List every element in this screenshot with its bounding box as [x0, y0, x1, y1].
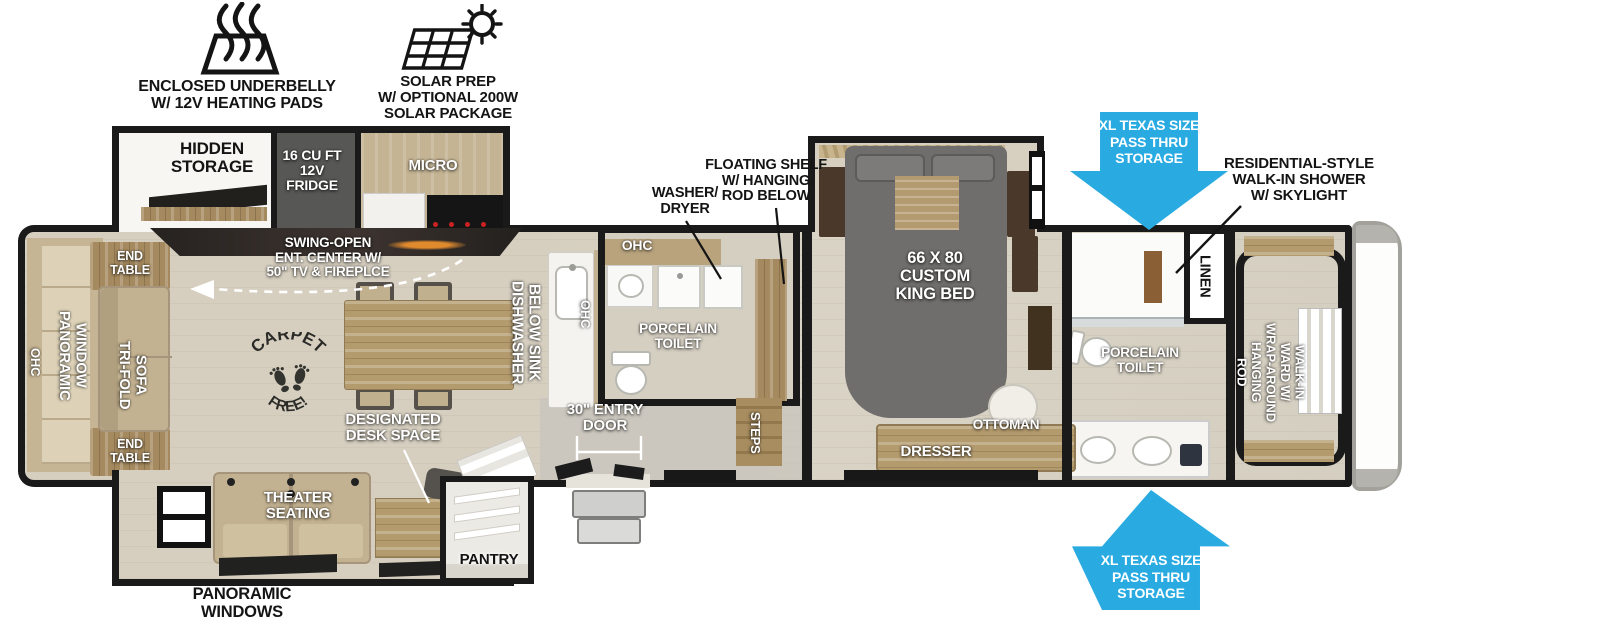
fridge-label: 16 CU FT 12V FRIDGE: [268, 148, 356, 193]
kitchen-ohc-label: OHC: [578, 288, 592, 340]
svg-text:FREE!: FREE!: [265, 393, 311, 416]
window: [157, 486, 211, 548]
shower-glass: [1072, 317, 1184, 327]
entry-door-label: 30" ENTRY DOOR: [548, 402, 662, 434]
pass-thru-arrow-top: XL TEXAS SIZE PASS THRU STORAGE: [1070, 112, 1228, 230]
dinette-chair: [356, 388, 394, 410]
panoramic-windows-label: PANORAMIC WINDOWS: [168, 586, 316, 622]
dishwasher-label: DISHWASHER BELOW SINK: [508, 255, 541, 410]
bedroom-left-wall: [802, 226, 812, 480]
solar-label: SOLAR PREP W/ OPTIONAL 200W SOLAR PACKAG…: [358, 74, 538, 123]
ent-center-label: SWING-OPEN ENT. CENTER W/ 50" TV & FIREP…: [233, 236, 423, 280]
window: [844, 470, 1038, 482]
king-bed-label: 66 X 80 CUSTOM KING BED: [872, 250, 998, 303]
micro-label: MICRO: [386, 158, 480, 174]
entry-steps-outside: [577, 518, 641, 544]
hidden-storage-label: HIDDEN STORAGE: [152, 140, 272, 177]
bath-vanity: [607, 265, 653, 307]
end-table-top-label: END TABLE: [88, 250, 172, 277]
shower: [1072, 233, 1184, 327]
slide-window: [379, 561, 445, 577]
desk-space-label: DESIGNATED DESK SPACE: [326, 412, 460, 444]
end-table-bottom-label: END TABLE: [88, 438, 172, 465]
floating-shelf-label: FLOATING SHELF W/ HANGING ROD BELOW: [698, 158, 834, 205]
front-toilet-label: PORCELAIN TOILET: [1078, 346, 1202, 375]
svg-text:CARPET: CARPET: [247, 332, 330, 357]
free-text: FREE!: [265, 393, 311, 416]
pantry-label: PANTRY: [444, 552, 534, 568]
folded-blanket: [895, 176, 959, 230]
micro-cabinet: [361, 133, 503, 232]
bath-ohc-label: OHC: [610, 238, 664, 253]
mid-toilet-label: PORCELAIN TOILET: [618, 322, 738, 351]
slide-window: [219, 554, 337, 576]
linen-label: LINEN: [1196, 240, 1212, 312]
dresser-label: DRESSER: [874, 444, 998, 460]
rv-floorplan-canvas: ENCLOSED UNDERBELLY W/ 12V HEATING PADS …: [0, 0, 1600, 625]
footprint-icon: [268, 363, 310, 395]
solar-panel-sun-icon: [400, 4, 504, 74]
ward-shelf-bottom: [1244, 440, 1334, 462]
ward-shelf-top: [1244, 236, 1334, 256]
front-cap: [1352, 221, 1402, 491]
shower-panel: [1144, 251, 1162, 303]
shower-label: RESIDENTIAL-STYLE WALK-IN SHOWER W/ SKYL…: [1206, 156, 1392, 205]
bedroom-tv: [1028, 306, 1052, 370]
toilet-mid: [611, 351, 655, 397]
dryer: [703, 265, 743, 309]
pass-thru-top-label: XL TEXAS SIZE PASS THRU STORAGE: [1099, 112, 1200, 230]
carpet-free-stamp: CARPET FREE!: [238, 332, 338, 428]
steps-label: STEPS: [748, 404, 762, 462]
nightstand: [1012, 236, 1038, 292]
micro-counter: [363, 193, 425, 231]
theater-seating-label: THEATER SEATING: [236, 490, 360, 522]
dinette-chair: [414, 388, 452, 410]
bath-bedroom-wall: [1062, 226, 1072, 480]
pass-thru-bottom-label: XL TEXAS SIZE PASS THRU STORAGE: [1101, 490, 1202, 610]
cooktop: [427, 195, 503, 231]
window: [1029, 151, 1045, 229]
washer: [657, 265, 701, 309]
panoramic-window-label: PANORAMIC WINDOW: [56, 283, 88, 428]
window: [664, 470, 736, 483]
heat-waves-icon: [192, 2, 288, 76]
double-vanity: [1068, 420, 1210, 478]
dinette-table: [344, 300, 514, 390]
ottoman-label: OTTOMAN: [950, 418, 1062, 433]
trifold-sofa-label: TRI-FOLD SOFA: [116, 318, 148, 433]
entry-steps-outside: [572, 490, 646, 518]
walkin-ward-label: WALK-IN WARD W/ WRAP-AROUND HANGING ROD: [1234, 306, 1307, 438]
rear-ohc-label: OHC: [28, 336, 42, 388]
hidden-storage-shelf: [141, 207, 267, 221]
floating-shelf-wood: [755, 259, 787, 401]
underbelly-label: ENCLOSED UNDERBELLY W/ 12V HEATING PADS: [112, 78, 362, 113]
carpet-text: CARPET: [247, 332, 330, 357]
pass-thru-arrow-bottom: XL TEXAS SIZE PASS THRU STORAGE: [1072, 490, 1230, 610]
